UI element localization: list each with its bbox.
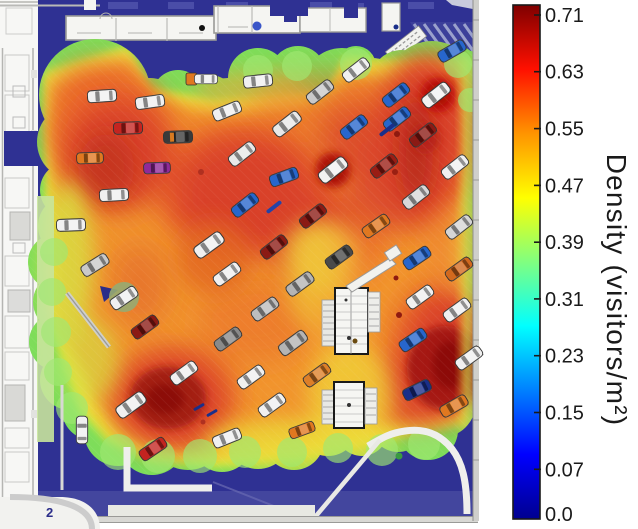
svg-text:0.0: 0.0 bbox=[545, 504, 573, 526]
svg-text:0.23: 0.23 bbox=[545, 346, 584, 368]
svg-text:2: 2 bbox=[46, 505, 53, 520]
svg-text:0.63: 0.63 bbox=[545, 62, 584, 84]
svg-text:0.39: 0.39 bbox=[545, 232, 584, 254]
svg-text:0.55: 0.55 bbox=[545, 119, 584, 141]
svg-text:0.47: 0.47 bbox=[545, 175, 584, 197]
svg-text:0.15: 0.15 bbox=[545, 403, 584, 425]
svg-text:0.71: 0.71 bbox=[545, 5, 584, 27]
svg-text:Density (visitors/m²): Density (visitors/m²) bbox=[601, 154, 632, 427]
svg-text:0.31: 0.31 bbox=[545, 289, 584, 311]
svg-text:0.07: 0.07 bbox=[545, 459, 584, 481]
